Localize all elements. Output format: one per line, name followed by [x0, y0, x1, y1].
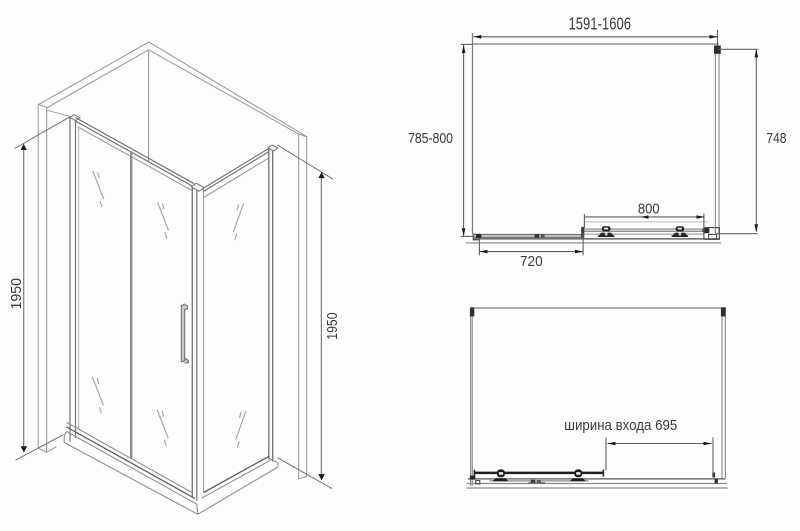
- svg-text:1591-1606: 1591-1606: [569, 14, 632, 34]
- svg-text:720: 720: [520, 253, 543, 270]
- svg-text:748: 748: [766, 130, 786, 147]
- svg-text:1950: 1950: [324, 313, 341, 340]
- svg-text:800: 800: [638, 201, 660, 218]
- svg-text:ширина входа 695: ширина входа 695: [564, 417, 677, 434]
- svg-text:1950: 1950: [8, 278, 25, 310]
- svg-text:785-800: 785-800: [408, 130, 453, 147]
